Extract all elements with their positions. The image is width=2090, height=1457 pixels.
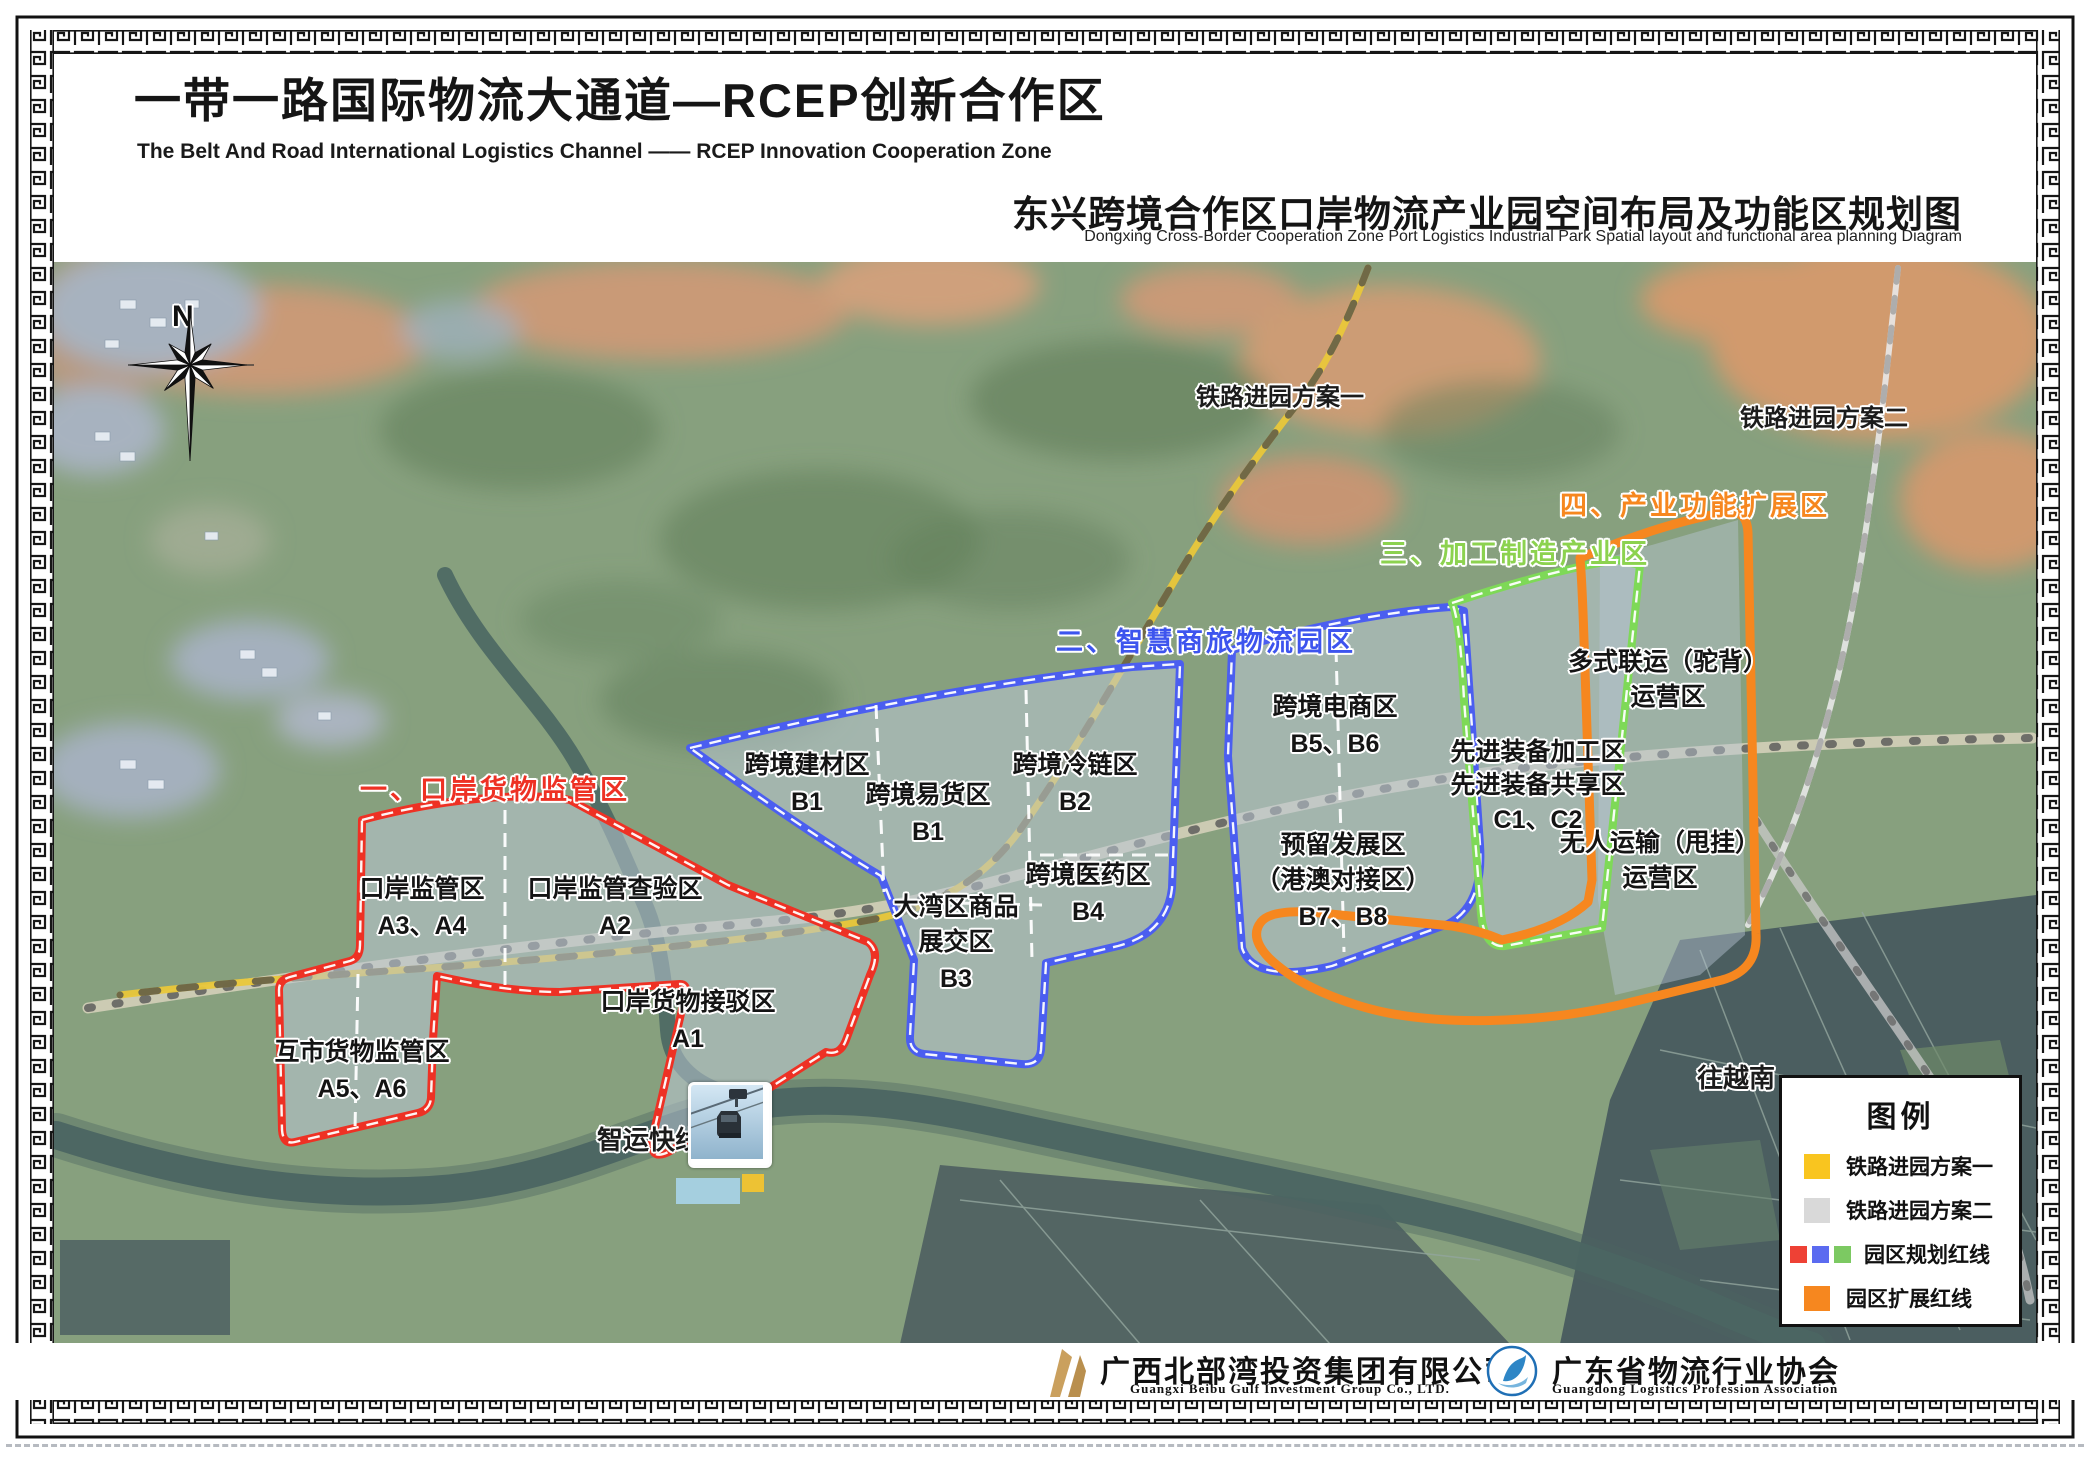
subzone-a3a4: 口岸监管区 A3、A4 xyxy=(322,872,522,944)
redline-swatch-red xyxy=(1790,1246,1807,1263)
org1-name-en: Guangxi Beibu Gulf Investment Group Co.,… xyxy=(1130,1381,1450,1397)
subzone-b5b6: 跨境电商区 B5、B6 xyxy=(1235,690,1435,762)
org2-logo-icon xyxy=(1486,1345,1538,1397)
expansion-swatch xyxy=(1804,1286,1830,1311)
subzone-multimodal: 多式联运（驼背） 运营区 xyxy=(1558,645,1778,715)
railway2-swatch xyxy=(1804,1198,1830,1223)
subzone-b7b8: 预留发展区 （港澳对接区） B7、B8 xyxy=(1243,828,1443,935)
railway1-swatch xyxy=(1804,1154,1830,1179)
page-title: 一带一路国际物流大通道—RCEP创新合作区 xyxy=(134,62,1106,131)
legend-row-railway1: 铁路进园方案一 xyxy=(1804,1152,2019,1180)
redline-swatch-green xyxy=(1834,1246,1851,1263)
org1-logo-icon xyxy=(1046,1345,1090,1399)
legend: 图例 铁路进园方案一 铁路进园方案二 园区规划红线 园区扩展红线 xyxy=(1779,1075,2022,1327)
to-vietnam-label: 往越南 xyxy=(1697,1058,1775,1095)
bottom-cut-line xyxy=(6,1444,2084,1447)
zone1-title: 一、口岸货物监管区 xyxy=(360,768,630,807)
compass-rose-icon xyxy=(110,310,270,470)
subzone-b4: 跨境医药区 B4 xyxy=(988,858,1188,930)
page-title-en: The Belt And Road International Logistic… xyxy=(137,140,1052,164)
railway-plan2-label: 铁路进园方案二 xyxy=(1740,398,1908,433)
legend-title: 图例 xyxy=(1782,1092,2019,1136)
redline-swatch-blue xyxy=(1812,1246,1829,1263)
zone2-title: 二、智慧商旅物流园区 xyxy=(1056,620,1356,659)
subzone-unmanned: 无人运输（甩挂） 运营区 xyxy=(1550,826,1770,896)
map-subtitle-en: Dongxing Cross-Border Cooperation Zone P… xyxy=(1084,228,1962,246)
zone4-title: 四、产业功能扩展区 xyxy=(1560,484,1830,523)
poster-page: 一带一路国际物流大通道—RCEP创新合作区 The Belt And Road … xyxy=(0,0,2090,1457)
cable-car-photo xyxy=(688,1082,772,1168)
org2-name-en: Guangdong Logistics Profession Associati… xyxy=(1552,1381,1838,1397)
footer: 广西北部湾投资集团有限公司 Guangxi Beibu Gulf Investm… xyxy=(0,1343,2090,1400)
legend-row-expansion-redline: 园区扩展红线 xyxy=(1804,1284,2019,1312)
legend-row-planning-redline: 园区规划红线 xyxy=(1790,1240,2019,1268)
zone3-title: 三、加工制造产业区 xyxy=(1380,532,1650,571)
subzone-c1c2: 先进装备加工区 先进装备共享区 C1、C2 xyxy=(1438,736,1638,837)
railway-plan1-label: 铁路进园方案一 xyxy=(1196,377,1364,412)
subzone-a5a6: 互市货物监管区 A5、A6 xyxy=(262,1035,462,1107)
legend-row-railway2: 铁路进园方案二 xyxy=(1804,1196,2019,1224)
smart-transit-label: 智运快线 xyxy=(597,1120,701,1157)
subzone-b2: 跨境冷链区 B2 xyxy=(975,748,1175,820)
subzone-a2: 口岸监管查验区 A2 xyxy=(515,872,715,944)
subzone-a1: 口岸货物接驳区 A1 xyxy=(588,985,788,1057)
